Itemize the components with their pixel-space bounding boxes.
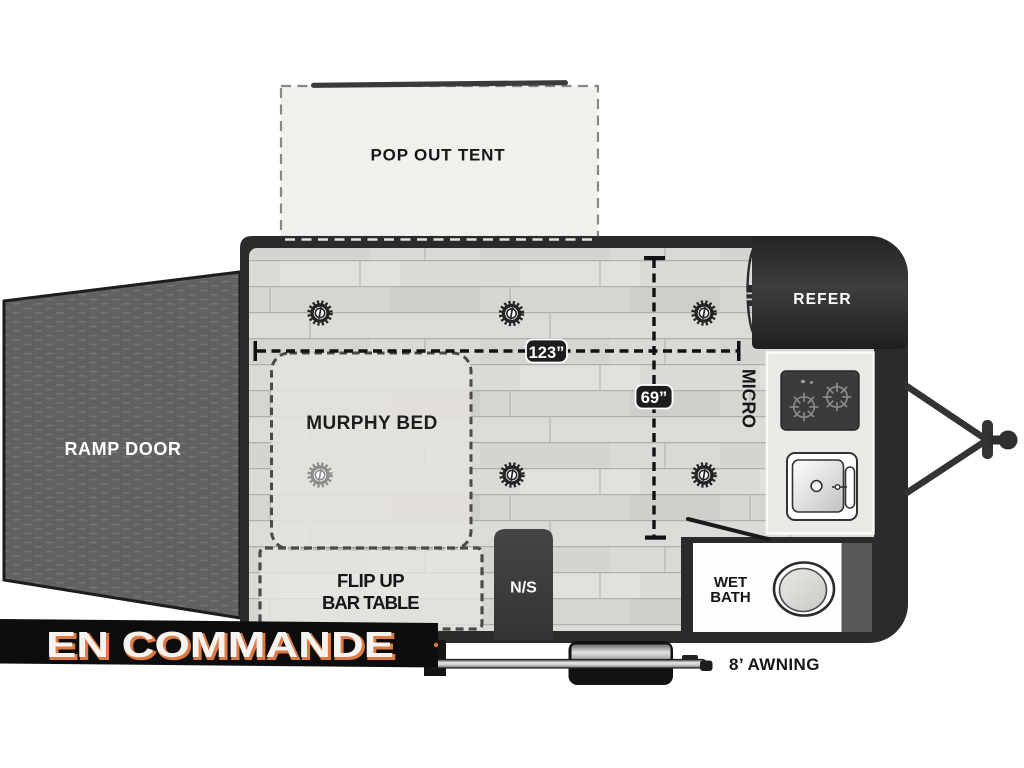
svg-text:MICRO: MICRO [739,369,760,428]
svg-text:BAR TABLE: BAR TABLE [322,592,420,613]
svg-text:FLIP UP: FLIP UP [337,570,405,591]
svg-text:8’ AWNING: 8’ AWNING [729,655,820,674]
svg-text:MURPHY BED: MURPHY BED [306,413,437,434]
svg-text:BATH: BATH [710,589,751,606]
svg-text:123”: 123” [529,344,565,362]
svg-text:REFER: REFER [793,291,852,308]
svg-text:N/S: N/S [510,580,537,597]
svg-text:69”: 69” [641,389,668,407]
svg-text:POP OUT TENT: POP OUT TENT [371,146,506,165]
svg-text:EN COMMANDE: EN COMMANDE [46,624,394,665]
svg-text:RAMP DOOR: RAMP DOOR [64,439,181,459]
